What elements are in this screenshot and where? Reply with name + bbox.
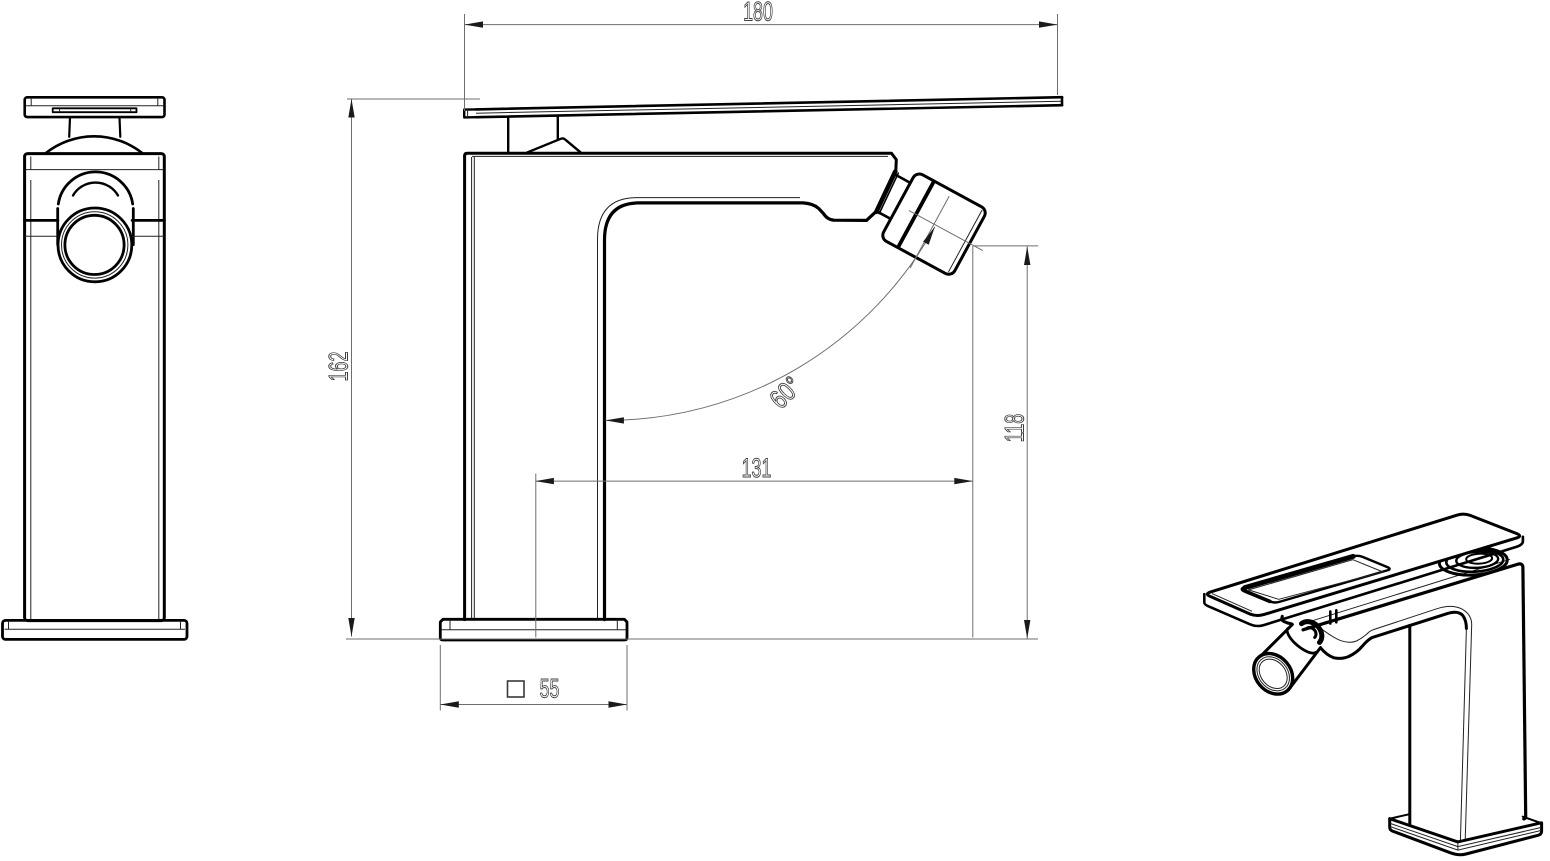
svg-text:118: 118 bbox=[999, 414, 1030, 442]
svg-text:55: 55 bbox=[540, 673, 560, 704]
svg-text:162: 162 bbox=[323, 352, 354, 382]
svg-text:180: 180 bbox=[743, 0, 773, 26]
svg-text:131: 131 bbox=[742, 452, 772, 483]
